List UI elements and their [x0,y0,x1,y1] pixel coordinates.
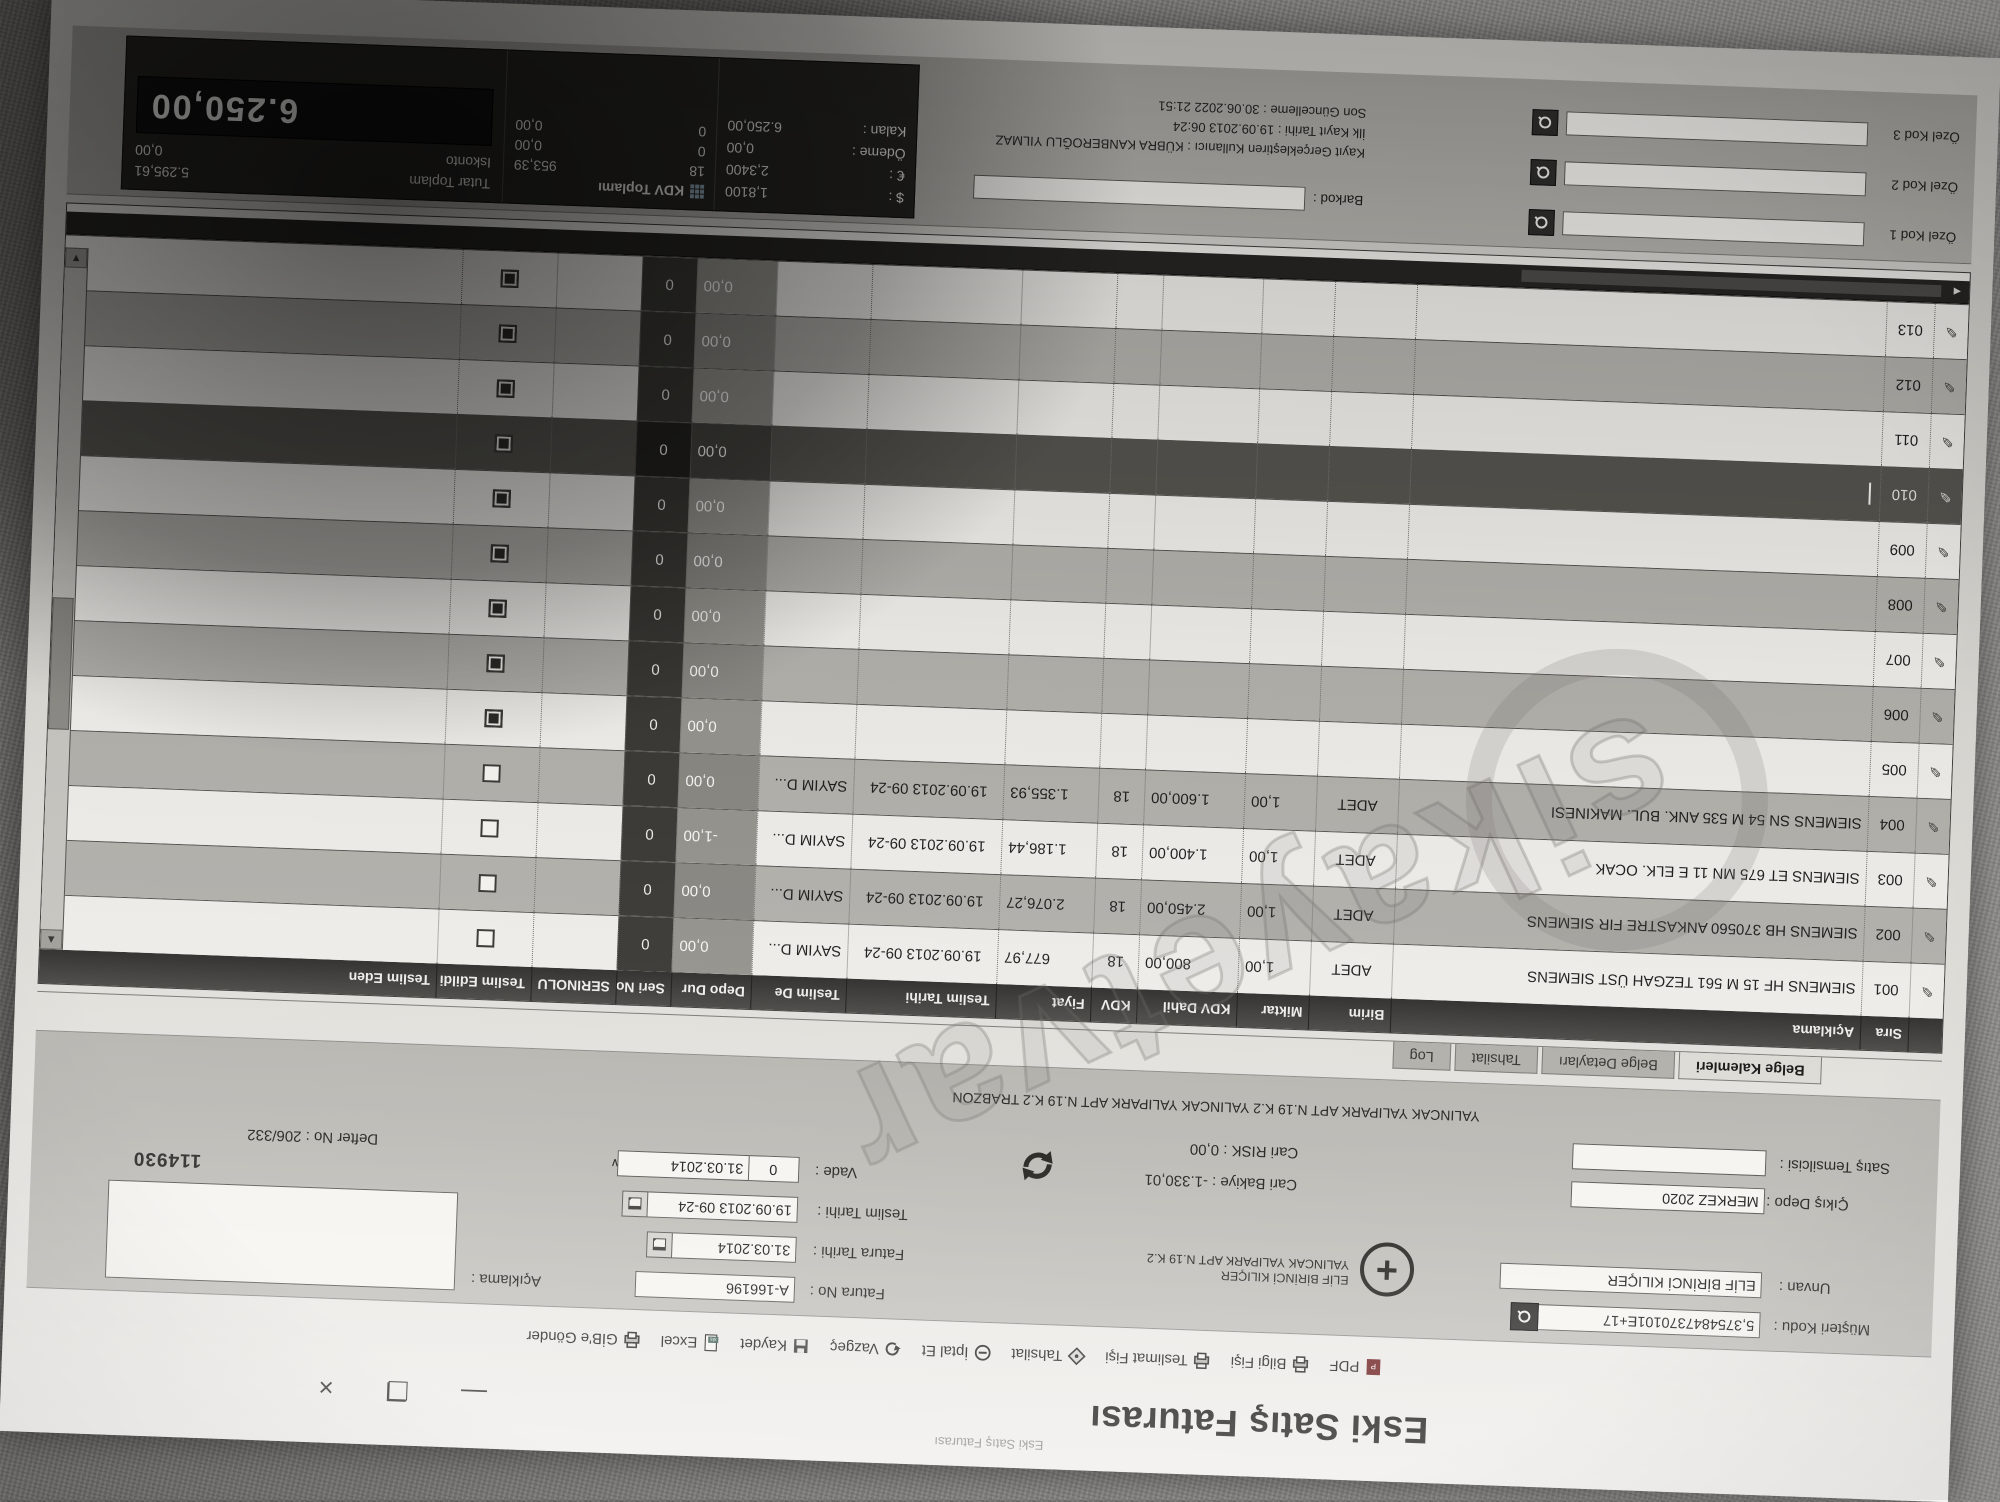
cell-teslim_edildi[interactable] [455,415,552,472]
cell-serinolu[interactable] [544,583,631,640]
cell-seri_no[interactable]: 0 [618,861,675,917]
cell-seri_no[interactable]: 0 [639,312,696,368]
cell-fiyat[interactable]: 1.355,93 [1002,765,1099,822]
cell-miktar[interactable]: 1,00 [1237,939,1311,996]
ozel-kod-1-label: Özel Kod 1 [1872,227,1956,245]
cell-teslim_edildi[interactable] [459,305,556,362]
cell-seri_no[interactable]: 0 [616,916,673,972]
grid-icon [690,184,705,199]
cell-depo_dur[interactable]: 0,00 [686,533,768,590]
tutar-toplam-label: Tutar Toplam [409,170,491,194]
cell-kdv_dahil[interactable] [1145,715,1247,773]
row-edit-icon[interactable]: ✎ [1909,964,1945,1019]
cell-sira[interactable]: 006 [1871,687,1921,743]
ozel-kod-1-lookup-button[interactable] [1528,209,1555,236]
cell-teslim_edildi[interactable] [451,525,548,582]
printer-icon [1192,1351,1211,1370]
cell-sira[interactable]: 003 [1865,852,1915,908]
usd-label: $ : [888,187,904,210]
aciklama-label: Açıklama : [471,1270,542,1290]
cell-kdv_dahil[interactable]: 2.450,00 [1139,880,1241,938]
cell-kdv_dahil[interactable]: 800,00 [1137,935,1239,993]
cell-teslim_edildi[interactable] [437,910,534,967]
scroll-up-icon[interactable]: ▲ [40,929,63,950]
teslim-edildi-checkbox[interactable] [482,764,501,783]
kdv-amount: 0,00 [514,135,542,156]
tab-log[interactable]: Log [1392,1042,1451,1071]
cell-miktar[interactable]: 1,00 [1241,829,1315,886]
cell-teslim_edildi[interactable] [453,470,550,527]
cell-sira[interactable]: 005 [1869,742,1919,798]
pdf-icon: P [1364,1358,1383,1377]
ozel-kod-3-row: Özel Kod 3 [1532,109,1961,151]
teslim-edildi-checkbox[interactable] [492,489,511,508]
text-cursor [1868,483,1871,505]
row-edit-icon[interactable]: ✎ [1911,909,1947,964]
kaydet-button[interactable]: Kaydet [740,1335,810,1356]
cell-teslim_depo[interactable] [759,701,856,758]
barkod-label: Barkod : [1313,192,1364,209]
cell-kdv[interactable] [1115,274,1163,330]
cell-kdv[interactable] [1101,659,1149,715]
row-edit-icon[interactable]: ✎ [1921,634,1957,689]
cell-serinolu[interactable] [546,528,633,585]
row-edit-icon[interactable]: ✎ [1927,469,1963,524]
ozel-kod-1-field[interactable] [1562,211,1865,246]
tab-belge-detaylari[interactable]: Belge Detayları [1541,1047,1675,1079]
calendar-icon[interactable] [621,1190,648,1217]
cell-kdv[interactable] [1113,329,1161,385]
ozel-kod-3-field[interactable] [1566,111,1869,146]
magnifier-icon [1518,1310,1530,1322]
cell-fiyat[interactable] [1020,271,1117,328]
cikis-depo-label: Çıkış Depo : [1766,1193,1849,1213]
cell-birim[interactable]: ADET [1313,832,1397,889]
column-header-kdv_dahil[interactable]: KDV Dahil [1136,989,1237,1027]
cell-miktar[interactable] [1247,664,1321,721]
satis-temsilcisi-label: Satış Temsilcisi : [1779,1156,1890,1177]
svg-text:P: P [1371,1362,1377,1371]
add-address-icon[interactable]: + [1359,1242,1415,1298]
kalan-label: Kalan : [862,120,906,144]
row-edit-icon[interactable]: ✎ [1929,414,1965,469]
cell-serinolu[interactable] [534,858,621,915]
cell-depo_dur[interactable]: 0,00 [684,588,766,645]
cell-fiyat[interactable] [1018,325,1115,382]
cell-depo_dur[interactable]: 0,00 [690,423,772,480]
totals-panel: $ :1,8100 € :2,3400 Ödeme :0,00 Kalan :6… [121,36,920,219]
cell-teslim_tarihi[interactable] [866,375,1018,434]
teslim-edildi-checkbox[interactable] [488,599,507,618]
cell-sira[interactable]: 007 [1873,632,1923,688]
cell-teslim_tarihi[interactable] [858,595,1010,654]
cell-teslim_depo[interactable] [772,371,869,428]
cell-kdv_dahil[interactable] [1153,496,1255,554]
cell-miktar[interactable] [1257,389,1331,446]
cell-teslim_depo[interactable] [761,646,858,703]
unvan-field[interactable]: ELİF BİRİNCİ KILIÇER [1499,1263,1762,1299]
kdv-rate: 18 [689,161,705,182]
currency-and-balance: $ :1,8100 € :2,3400 Ödeme :0,00 Kalan :6… [713,58,918,217]
close-button[interactable]: × [318,1372,334,1403]
cell-seri_no[interactable]: 0 [633,476,690,532]
cell-kdv_dahil[interactable] [1157,386,1259,444]
unvan-label: Unvan : [1779,1278,1831,1297]
cell-kdv[interactable] [1111,384,1159,440]
magnifier-icon [1539,116,1551,128]
window-caption: Eski Satış Faturası [934,1434,1044,1453]
iskonto-label: Iskonto [445,150,491,173]
cell-teslim_tarihi[interactable] [864,430,1016,489]
cell-fiyat[interactable] [1014,435,1111,492]
cell-depo_dur[interactable]: 0,00 [673,863,755,920]
cell-birim[interactable] [1321,612,1405,669]
row-edit-icon[interactable]: ✎ [1915,799,1951,854]
grand-total: 6.250,00 [136,76,494,146]
cell-depo_dur[interactable]: 0,00 [680,698,762,755]
row-edit-icon[interactable]: ✎ [1917,744,1953,799]
cell-seri_no[interactable]: 0 [629,586,686,642]
tab-tahsilat[interactable]: Tahsilat [1454,1044,1538,1074]
cikis-depo-field[interactable]: MERKEZ 2020 [1570,1181,1765,1214]
cari-bakiye: Cari Bakiye : -1.330,01 [1144,1171,1297,1194]
cell-kdv[interactable] [1105,549,1153,605]
magnifier-icon [1537,166,1549,178]
cell-teslim_edildi[interactable] [443,745,540,802]
fatura-tarihi-field[interactable]: 31.03.2014 [662,1232,797,1263]
cell-kdv_dahil[interactable]: 1.600,00 [1143,770,1245,828]
vade-label: Vade : [815,1163,858,1182]
fatura-no-field[interactable]: A-166196 [635,1271,796,1303]
defter-no: Defter No : 206/332 [247,1126,378,1148]
cell-teslim_depo[interactable]: SAYIM D... [751,921,848,978]
cell-serinolu[interactable] [540,693,627,750]
cell-teslim_tarihi[interactable] [854,705,1006,764]
chevron-down-icon[interactable]: ∨ [610,1156,619,1170]
musteri-kodu-label: Müşteri Kodu : [1773,1318,1870,1339]
cell-teslim_depo[interactable]: SAYIM D... [753,866,850,923]
cell-kdv[interactable]: 18 [1093,879,1141,935]
cell-fiyat[interactable] [1004,710,1101,767]
cell-teslim_depo[interactable] [765,536,862,593]
barkod-field[interactable] [973,175,1306,211]
cell-teslim_edildi[interactable] [457,360,554,417]
cell-birim[interactable] [1325,502,1409,559]
cell-sira[interactable]: 004 [1867,797,1917,853]
fatura-tarihi-label: Fatura Tarihi : [813,1242,905,1262]
audit-info: Kayıt Gerçekleştiren Kullanıcı : KÜBRA K… [995,89,1367,163]
cell-serinolu[interactable] [538,748,625,805]
gibe-gonder-button[interactable]: GİB'e Gönder [526,1327,641,1349]
kalan-value: 6.250,00 [727,115,782,139]
pdf-button[interactable]: P PDF [1329,1356,1383,1376]
odeme-value: 0,00 [726,137,754,160]
row-edit-icon[interactable]: ✎ [1913,854,1949,909]
ozel-kod-3-lookup-button[interactable] [1532,109,1559,136]
cell-teslim_depo[interactable] [768,481,865,538]
musteri-kodu-field[interactable]: 5,3754847370101E+17 [1536,1304,1761,1338]
column-header-teslim_edildi[interactable]: Teslim Edildi [435,964,531,1001]
cell-kdv[interactable]: 18 [1095,824,1143,880]
cell-fiyat[interactable]: 2.076,27 [998,875,1095,932]
cell-teslim_tarihi[interactable] [868,320,1020,379]
cell-serinolu[interactable] [542,638,629,695]
teslim-edildi-checkbox[interactable] [486,654,505,673]
fatura-no-label: Fatura No : [810,1282,886,1302]
cell-seri_no[interactable]: 0 [635,421,692,477]
column-header-seri_no[interactable]: Seri No [615,970,671,1006]
column-header-depo_dur[interactable]: Depo Dur [670,972,751,1009]
cell-seri_no[interactable]: 0 [627,641,684,697]
cell-teslim_edildi[interactable] [439,855,536,912]
cell-seri_no[interactable]: 0 [623,751,680,807]
cell-seri_no[interactable]: 0 [621,806,678,862]
ozel-kod-1-row: Özel Kod 1 [1528,209,1957,251]
cell-birim[interactable] [1323,557,1407,614]
cell-sira[interactable]: 013 [1885,302,1935,358]
cell-depo_dur[interactable]: 0,00 [692,369,774,426]
diamond-icon [1067,1347,1086,1366]
cell-depo_dur[interactable]: -1,00 [675,808,757,865]
ozel-kod-2-row: Özel Kod 2 [1530,159,1959,201]
vazgec-button[interactable]: Vazgeç [830,1338,903,1359]
iptal-et-button[interactable]: İptal Et [921,1342,991,1363]
cell-depo_dur[interactable]: 0,00 [694,314,776,371]
page-title: Eski Satış Faturası [1089,1397,1429,1451]
cell-seri_no[interactable]: 0 [631,531,688,587]
printed-screenshot-paper: sikayetvar Eski Satış Faturası Eski Satı… [0,0,2000,1502]
invoice-lines-grid: SıraAçıklamaBirimMiktarKDV DahilKDVFiyat… [38,202,1971,1053]
cell-depo_dur[interactable]: 0,00 [682,643,764,700]
cell-sira[interactable]: 001 [1861,962,1911,1018]
cell-kdv[interactable] [1109,439,1157,495]
printer-icon [622,1331,641,1350]
tahsilat-button[interactable]: Tahsilat [1011,1345,1085,1366]
column-header-birim[interactable]: Birim [1308,995,1391,1032]
cell-teslim_tarihi[interactable]: 19.09.2013 09-24 [848,870,1000,929]
cell-serinolu[interactable] [532,913,619,970]
column-header-miktar[interactable]: Miktar [1236,993,1309,1030]
teslim-edildi-checkbox[interactable] [494,434,513,453]
column-header-sira[interactable]: Sıra [1859,1016,1908,1052]
cell-kdv_dahil[interactable] [1149,605,1251,663]
cell-birim[interactable] [1329,392,1413,449]
cell-serinolu[interactable] [550,418,637,475]
odeme-label: Ödeme : [851,141,905,165]
cell-fiyat[interactable] [1016,380,1113,437]
cell-miktar[interactable] [1261,279,1335,336]
header-row-marker [1907,1017,1942,1052]
cell-kdv_dahil[interactable] [1147,660,1249,718]
cell-miktar[interactable] [1249,609,1323,666]
cell-sira[interactable]: 012 [1883,357,1933,413]
cell-depo_dur[interactable]: 0,00 [677,753,759,810]
cari-risk: Cari RISK : 0,00 [1190,1140,1299,1161]
iskonto-value: 0,00 [135,139,163,161]
address-preview: ELİF BİRİNCİ KILIÇER YALINCAK YALIPARK A… [1146,1250,1349,1287]
cell-kdv[interactable]: 18 [1097,769,1145,825]
cell-miktar[interactable] [1255,444,1329,501]
kdv-toplami-title: KDV Toplamı [598,178,685,201]
cell-teslim_edildi[interactable] [441,800,538,857]
calendar-icon[interactable] [646,1231,673,1258]
cell-serinolu[interactable] [548,473,635,530]
column-header-serinolu[interactable]: SERINOLU [530,967,616,1004]
cell-serinolu[interactable] [556,253,643,310]
row-edit-icon[interactable]: ✎ [1931,359,1967,414]
cell-kdv[interactable] [1107,494,1155,550]
teslim-tarihi-field[interactable]: 19.09.2013 09-24 [637,1191,798,1223]
cell-birim[interactable]: ADET [1311,887,1395,944]
cell-birim[interactable] [1331,337,1415,394]
vade-tarihi-field[interactable]: 31.03.2014 [617,1150,750,1181]
cell-birim[interactable] [1319,667,1403,724]
cell-seri_no[interactable]: 0 [625,696,682,752]
teslim-edildi-checkbox[interactable] [500,269,519,288]
magnifier-icon [1535,216,1547,228]
column-header-teslim_tarihi[interactable]: Teslim Tarihi [845,979,996,1018]
tab-belge-kalemleri[interactable]: Belge Kalemleri [1678,1052,1822,1084]
row-edit-icon[interactable]: ✎ [1923,579,1959,634]
cell-sira[interactable]: 011 [1881,412,1931,468]
teslim-edildi-checkbox[interactable] [480,819,499,838]
cell-teslim_edildi[interactable] [461,250,558,307]
row-edit-icon[interactable]: ✎ [1919,689,1955,744]
column-header-teslim_depo[interactable]: Teslim De [750,975,846,1012]
cell-birim[interactable] [1327,447,1411,504]
cell-fiyat[interactable]: 677,97 [996,930,1093,987]
excel-file-icon: xls [702,1334,721,1353]
window-controls: — ❐ × [318,1372,487,1408]
cell-teslim_tarihi[interactable] [856,650,1008,709]
cell-miktar[interactable]: 1,00 [1239,884,1313,941]
restore-button[interactable]: ❐ [385,1375,409,1406]
cell-miktar[interactable] [1253,499,1327,556]
cell-kdv_dahil[interactable]: 1.400,00 [1141,825,1243,883]
minus-circle-icon [973,1343,992,1362]
minimize-button[interactable]: — [460,1378,487,1409]
ozel-kod-2-field[interactable] [1564,161,1867,196]
cell-teslim_tarihi[interactable] [862,485,1014,544]
cell-kdv_dahil[interactable] [1151,550,1253,608]
cell-seri_no[interactable]: 0 [637,367,694,423]
scrollbar-thumb[interactable] [48,597,74,730]
scroll-left-icon[interactable]: ◄ [1951,285,1963,299]
teslim-edildi-checkbox[interactable] [478,874,497,893]
vade-gun-field[interactable]: 0 [747,1155,800,1183]
ozel-kod-2-lookup-button[interactable] [1530,159,1557,186]
cell-kdv[interactable] [1103,604,1151,660]
cell-kdv[interactable] [1099,714,1147,770]
cell-kdv_dahil[interactable] [1161,276,1263,334]
cell-sira[interactable]: 002 [1863,907,1913,963]
teslim-edildi-checkbox[interactable] [484,709,503,728]
cell-sira[interactable]: 009 [1877,522,1927,578]
cell-teslim_edildi[interactable] [445,690,542,747]
cell-teslim_tarihi[interactable]: 19.09.2013 09-24 [846,925,998,984]
belge-no: 114930 [133,1147,202,1171]
cell-serinolu[interactable] [552,363,639,420]
column-header-kdv[interactable]: KDV [1090,988,1137,1024]
excel-button[interactable]: xls Excel [660,1332,720,1352]
cell-teslim_tarihi[interactable]: 19.09.2013 09-24 [852,760,1004,819]
teslim-edildi-checkbox[interactable] [498,324,517,343]
cell-kdv[interactable]: 18 [1091,934,1139,990]
row-edit-icon[interactable]: ✎ [1925,524,1961,579]
cell-kdv_dahil[interactable] [1155,441,1257,499]
cell-seri_no[interactable]: 0 [641,257,698,313]
cell-miktar[interactable] [1251,554,1325,611]
row-edit-icon[interactable]: ✎ [1933,304,1969,359]
cell-birim[interactable]: ADET [1315,777,1399,834]
cell-fiyat[interactable] [1012,490,1109,547]
teslim-edildi-checkbox[interactable] [476,929,495,948]
cell-miktar[interactable] [1245,719,1319,776]
cell-miktar[interactable] [1259,334,1333,391]
svg-text:xls: xls [710,1336,717,1342]
invoice-app-window: Eski Satış Faturası Eski Satış Faturası … [22,4,1978,1486]
cell-fiyat[interactable] [1006,655,1103,712]
cell-fiyat[interactable]: 1.186,44 [1000,820,1097,877]
cell-miktar[interactable]: 1,00 [1243,774,1317,831]
aciklama-box[interactable] [105,1180,458,1291]
address-full-line: YALINCAK YALIPARK APT N.19 K.2 YALINCAK … [952,1090,1480,1125]
musteri-lookup-button[interactable] [1510,1302,1539,1331]
cell-sira[interactable]: 008 [1875,577,1925,633]
ozel-kod-3-label: Özel Kod 3 [1876,127,1960,145]
refresh-icon[interactable] [1017,1145,1058,1186]
cell-serinolu[interactable] [554,308,641,365]
cell-teslim_depo[interactable] [774,316,871,373]
cell-depo_dur[interactable]: 0,00 [671,918,753,975]
cell-teslim_depo[interactable] [770,426,867,483]
eur-label: € : [889,165,905,188]
bilgi-fisi-button[interactable]: Bilgi Fişi [1230,1353,1309,1374]
teslim-edildi-checkbox[interactable] [496,379,515,398]
teslim-edildi-checkbox[interactable] [490,544,509,563]
kdv-amount: 953,39 [514,155,558,177]
cell-birim[interactable] [1317,722,1401,779]
cell-teslim_edildi[interactable] [447,635,544,692]
cell-teslim_tarihi[interactable] [871,265,1023,324]
cell-teslim_depo[interactable]: SAYIM D... [757,756,854,813]
ozel-kod-2-label: Özel Kod 2 [1874,177,1958,195]
cell-teslim_tarihi[interactable]: 19.09.2013 09-24 [850,815,1002,874]
cell-birim[interactable] [1333,282,1417,339]
printer-icon [1291,1355,1310,1374]
tutar-toplam-value: 5.295,61 [134,160,189,183]
cell-sira[interactable]: 010 [1879,467,1929,523]
grid-body: ✎001SIEMENS HF 15 M 561 TEZGAH ÜST SIEME… [40,234,1969,1018]
usd-rate: 1,8100 [725,181,769,205]
cell-kdv_dahil[interactable] [1159,331,1261,389]
scroll-down-icon[interactable]: ▼ [65,247,88,268]
teslimat-fisi-button[interactable]: Teslimat Fişi [1105,1348,1211,1370]
cell-depo_dur[interactable]: 0,00 [688,478,770,535]
cell-teslim_depo[interactable]: SAYIM D... [755,811,852,868]
cell-serinolu[interactable] [536,803,623,860]
satis-temsilcisi-field[interactable] [1572,1143,1767,1176]
cell-birim[interactable]: ADET [1309,942,1393,999]
cell-fiyat[interactable] [1010,545,1107,602]
cell-fiyat[interactable] [1008,600,1105,657]
cell-teslim_edildi[interactable] [449,580,546,637]
cell-teslim_depo[interactable] [763,591,860,648]
cell-teslim_depo[interactable] [776,262,873,319]
column-header-fiyat[interactable]: Fiyat [995,984,1091,1021]
cell-teslim_tarihi[interactable] [860,540,1012,599]
cell-depo_dur[interactable]: 0,00 [696,259,778,316]
